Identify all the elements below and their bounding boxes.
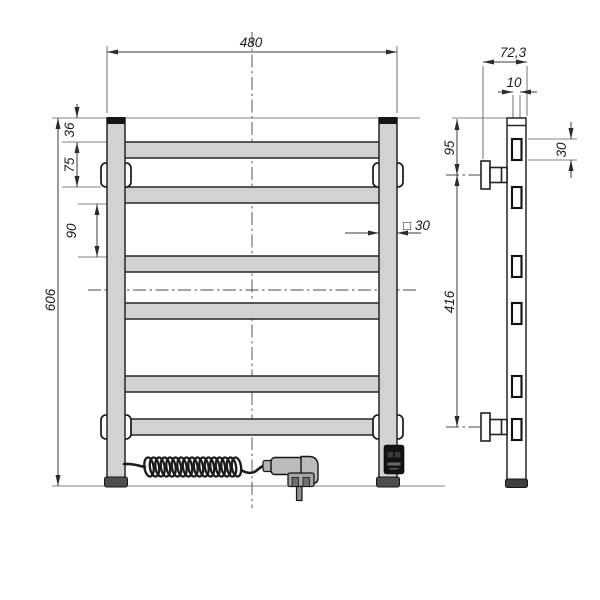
plug-body bbox=[271, 458, 303, 475]
plug-ear-right bbox=[303, 478, 310, 487]
left-post-top-cap bbox=[107, 117, 126, 124]
dim-overall-width: 480 bbox=[107, 35, 397, 55]
dim-label-75: 75 bbox=[62, 157, 77, 173]
side-profile-bottom-cap bbox=[506, 479, 528, 488]
dim-depth: 72,3 bbox=[483, 45, 527, 65]
module-display bbox=[388, 463, 401, 466]
rung-5 bbox=[125, 376, 380, 392]
dim-label-90: 90 bbox=[64, 223, 79, 239]
side-view bbox=[481, 118, 528, 488]
dim-label-606: 606 bbox=[43, 288, 58, 311]
rung-4 bbox=[125, 303, 380, 319]
bracket-side-top-flange bbox=[481, 161, 490, 189]
module-button-left bbox=[388, 452, 394, 458]
side-wall-brackets bbox=[481, 161, 507, 441]
slot-2 bbox=[512, 187, 522, 208]
dim-rung-gap: 90 bbox=[64, 204, 100, 257]
cord-coil bbox=[143, 457, 242, 477]
slot-1 bbox=[512, 139, 522, 160]
dim-first-gap: 75 bbox=[62, 142, 80, 187]
bracket-side-bottom-flange bbox=[481, 413, 490, 441]
right-post-top-cap bbox=[379, 117, 398, 124]
dim-label-36: 36 bbox=[62, 122, 77, 138]
rung-6 bbox=[125, 419, 380, 435]
slot-3 bbox=[512, 256, 522, 277]
dim-overall-height: 606 bbox=[43, 118, 61, 486]
rung-1 bbox=[125, 142, 380, 158]
left-post bbox=[107, 118, 125, 486]
rung-2 bbox=[125, 187, 380, 203]
dim-label-72-3: 72,3 bbox=[500, 45, 527, 60]
technical-drawing-canvas: 480 606 36 75 90 bbox=[0, 0, 600, 600]
module-button-right bbox=[395, 452, 401, 458]
right-post-foot bbox=[377, 477, 400, 487]
right-post bbox=[379, 118, 397, 486]
dim-label-480: 480 bbox=[240, 35, 263, 50]
plug-pin bbox=[297, 487, 303, 501]
dim-label-30: 30 bbox=[554, 142, 569, 158]
control-module bbox=[384, 445, 404, 474]
dim-label-95: 95 bbox=[442, 140, 457, 156]
dim-panel-thickness: 10 bbox=[498, 75, 537, 95]
module-label bbox=[390, 468, 399, 470]
power-cord bbox=[124, 457, 270, 477]
front-view bbox=[101, 117, 404, 501]
dim-label-square-30: □ 30 bbox=[403, 218, 430, 233]
rung-3 bbox=[125, 256, 380, 272]
towel-rail-drawing: 480 606 36 75 90 bbox=[0, 0, 600, 600]
dim-label-416: 416 bbox=[442, 290, 457, 313]
slot-6 bbox=[512, 419, 522, 440]
bracket-side-bottom-stem bbox=[490, 420, 507, 435]
slot-5 bbox=[512, 376, 522, 397]
plug-ear-left bbox=[292, 478, 299, 487]
dim-label-10: 10 bbox=[506, 75, 522, 90]
dim-slot-height: 30 bbox=[554, 122, 574, 178]
dim-bracket-offsets: 95 416 bbox=[442, 119, 460, 427]
bracket-side-top-stem bbox=[490, 168, 507, 183]
slot-4 bbox=[512, 303, 522, 324]
power-plug bbox=[263, 457, 318, 501]
left-post-foot bbox=[105, 477, 128, 487]
